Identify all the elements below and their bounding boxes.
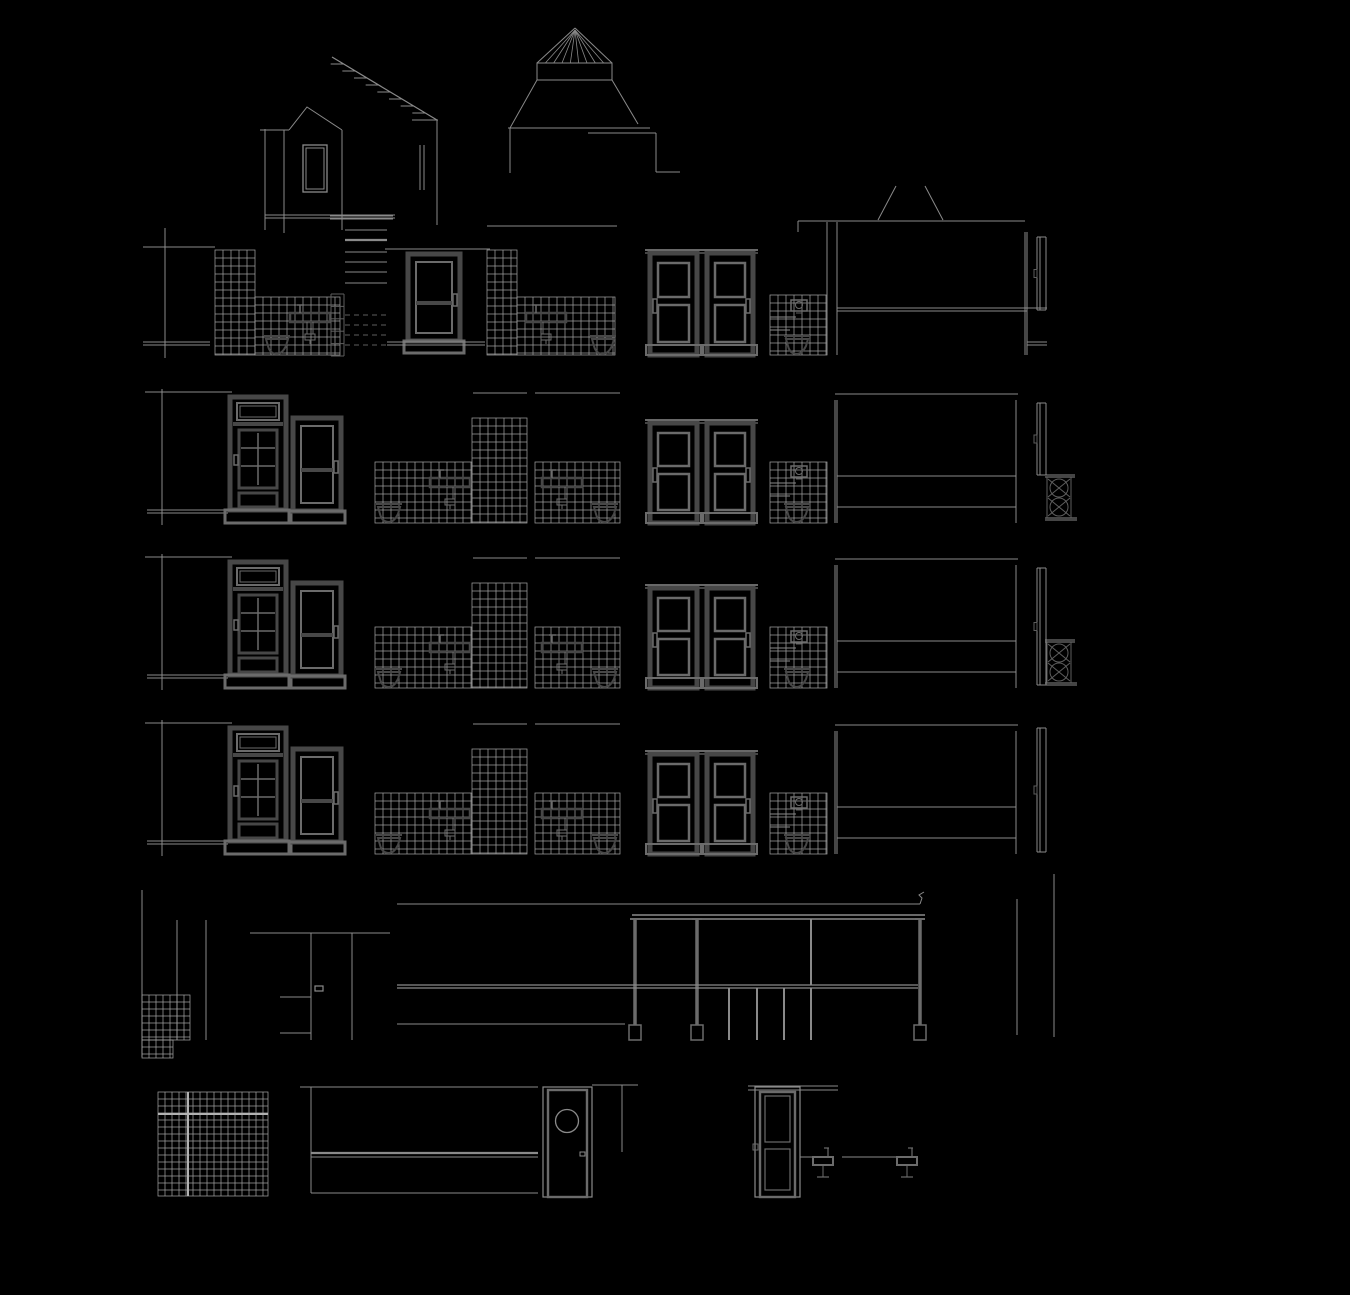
annex-chimney-left [878,186,896,220]
bedroom-door-left [658,474,689,510]
wc-tiled-wall [770,793,827,854]
stairhall-door [240,571,276,582]
shower-tiled-wall [215,250,255,355]
bathroom2-tiled-wall [517,297,615,355]
shopfront-column-right [914,1025,926,1040]
bedroom-door-left [658,433,689,466]
skylight-cone-roof [545,30,575,63]
stairhall-door [234,455,238,465]
stairhall-door [239,493,277,507]
entry-tiled-wainscot-step [142,1040,173,1058]
bedroom-door-right [715,764,745,797]
cellar-door [765,1149,790,1190]
entry-tiled-wainscot [142,995,190,1040]
bathroom-toilet [266,339,288,354]
bedroom-door-right [715,598,745,631]
bathroom2-toilet [592,339,614,354]
dormer-gable-outline [289,107,342,130]
apartment-entrance-door [301,757,333,834]
first-floor-level [145,720,1046,856]
bedroom-door-left [658,305,689,342]
stairhall-door [239,824,277,838]
bedroom-door-right [715,474,745,510]
cellar-tiled-wall [158,1092,268,1196]
apartment-entrance-door [334,461,338,473]
bathroom2-tiled-column [487,250,517,355]
bedroom-door-left [653,299,657,313]
bathroom-tiled-wall-column [472,583,527,688]
architectural-section-page [0,0,1350,1295]
bedroom-door-left [653,633,657,647]
roof-level [260,28,943,233]
bedroom-door-right [715,433,745,466]
bathroom-toilet [378,672,400,687]
gutter-profile [919,892,924,904]
apartment-entrance-door [301,591,333,668]
bedroom-door-right [746,799,750,813]
wc-tiled-wall [770,462,827,523]
skylight-drum-band [537,63,612,80]
wc-toilet [786,838,808,853]
apartment-entrance-door [301,426,333,503]
wc-cistern [796,468,803,475]
cellar-door [765,1096,790,1142]
side-door-edge [1034,623,1037,631]
bedroom-door-left [653,468,657,482]
stairhall-door [234,620,238,630]
entrance-door-handle [315,986,323,991]
dormer-window-glass [306,148,324,189]
bedroom-door-right [746,299,750,313]
dormer-window-frame [303,145,327,192]
bedroom-door-left [658,598,689,631]
bedroom-door-left [653,799,657,813]
side-door-edge [1034,786,1037,794]
apartment-entrance-door [334,626,338,638]
bedroom-door-right [746,633,750,647]
shopfront-column-mid [691,1025,703,1040]
main-roof-slope [332,57,437,120]
wc-tiled-wall [770,295,827,355]
bathroom-tiled-wall-low [375,627,472,688]
ground-floor-level [142,874,1054,1058]
second-floor-level [145,554,1077,690]
bedroom-door-right [746,468,750,482]
porthole-door-leaf [548,1090,587,1197]
bathroom-tiled-wall-column [472,418,527,523]
wc-toilet [786,507,808,522]
skylight-skirt-right [612,80,638,124]
wc-cistern [796,799,803,806]
bathroom2-tiled-wall [535,462,620,523]
wc-toilet [786,339,808,354]
side-door-edge [1034,435,1037,443]
stairhall-door [239,658,277,672]
stairhall-door [240,406,276,417]
bedroom-door-right [715,639,745,675]
wc-cistern [796,302,803,309]
wc-toilet [786,672,808,687]
wc-cistern [796,633,803,640]
bedroom-door-right [715,263,745,297]
bedroom-door-left [658,805,689,841]
bathroom2-toilet [594,507,616,522]
building-section-drawing [0,0,1350,1295]
bedroom-door-right [715,305,745,342]
skylight-skirt-left [510,80,537,128]
attic-room-door [416,262,452,333]
side-door-edge [1034,270,1037,278]
porthole-door-frame [543,1087,592,1197]
bathroom-toilet [378,507,400,522]
porthole-door-handle [580,1152,585,1156]
annex-chimney-right [925,186,943,220]
apartment-entrance-door [334,792,338,804]
cellar-washbasin-1 [813,1157,833,1165]
bathroom2-tiled-wall [535,793,620,854]
bathroom-tiled-wall-column [472,749,527,854]
bathroom2-toilet [594,672,616,687]
bedroom-door-left [658,263,689,297]
cellar-washbasin-2 [897,1157,917,1165]
stairhall-door [240,737,276,748]
shopfront-column-left [629,1025,641,1040]
porthole-window [556,1110,579,1133]
attic-level [143,216,1047,358]
wc-tiled-wall [770,627,827,688]
stairhall-door [234,786,238,796]
bedroom-door-left [658,764,689,797]
bathroom-tiled-wall-low [375,793,472,854]
section-drawing-svg [0,0,1350,1295]
bedroom-door-right [715,805,745,841]
basement-level [158,1085,917,1197]
bathroom-tiled-wall-low [375,462,472,523]
bedroom-door-left [658,639,689,675]
skylight-cone-roof [575,30,604,63]
bathroom2-toilet [594,838,616,853]
third-floor-level [145,389,1077,525]
attic-room-door [453,294,457,306]
bathroom2-tiled-wall [535,627,620,688]
bathroom-toilet [378,838,400,853]
